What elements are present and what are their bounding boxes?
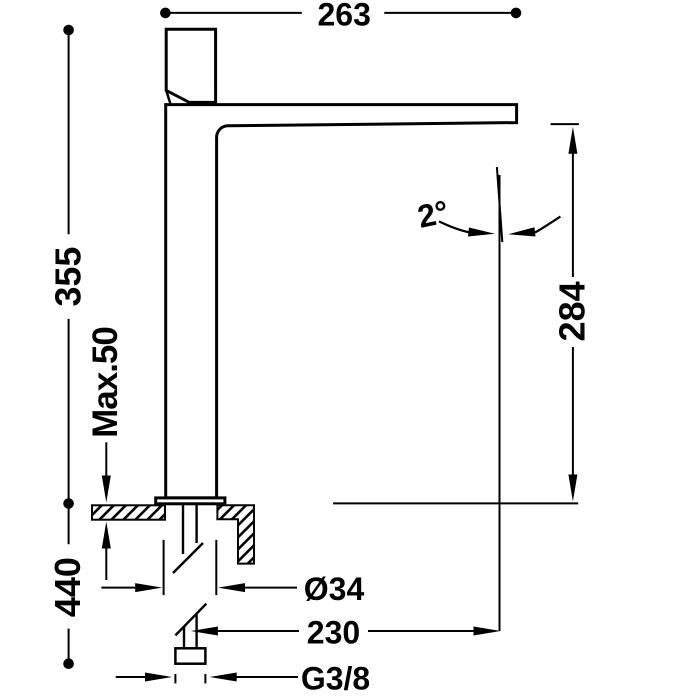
svg-text:355: 355 xyxy=(48,247,89,307)
svg-text:Ø34: Ø34 xyxy=(304,571,365,607)
svg-text:284: 284 xyxy=(552,281,593,341)
svg-text:263: 263 xyxy=(318,0,371,32)
svg-text:Max.50: Max.50 xyxy=(86,327,125,438)
svg-text:G3/8: G3/8 xyxy=(301,661,370,697)
svg-text:440: 440 xyxy=(47,557,88,617)
svg-text:230: 230 xyxy=(307,614,360,650)
